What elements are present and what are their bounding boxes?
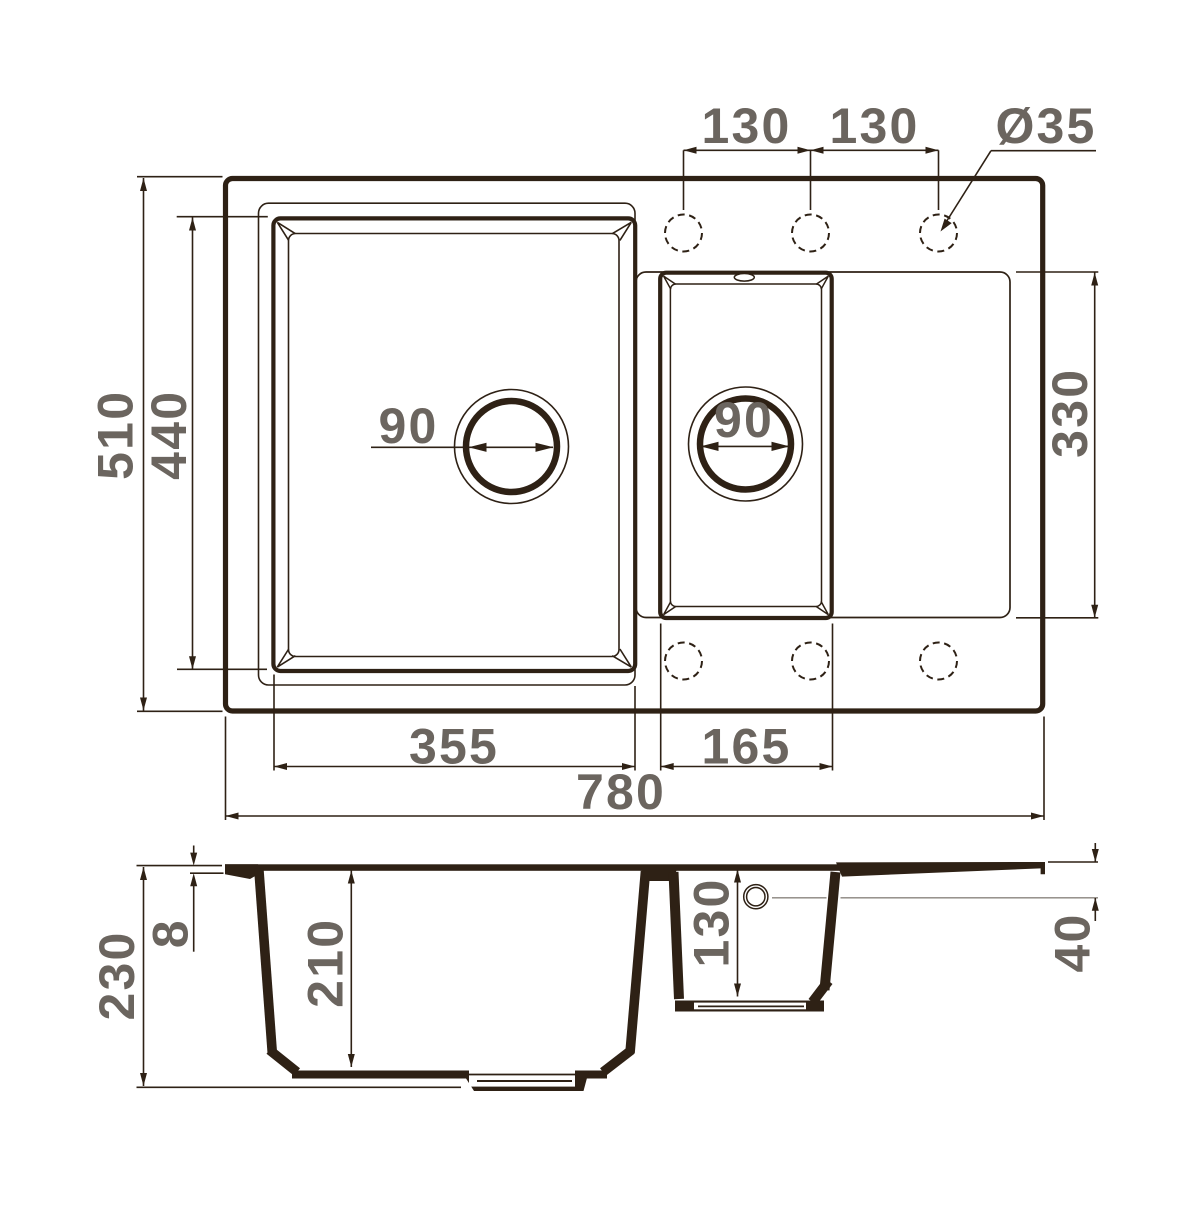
svg-text:130: 130	[684, 877, 740, 967]
svg-text:165: 165	[701, 719, 791, 775]
svg-text:8: 8	[142, 918, 198, 948]
svg-text:230: 230	[89, 930, 145, 1020]
svg-text:90: 90	[378, 398, 438, 454]
svg-text:130: 130	[701, 98, 791, 154]
svg-text:440: 440	[141, 390, 197, 480]
svg-text:330: 330	[1042, 368, 1098, 458]
svg-text:510: 510	[88, 390, 144, 480]
svg-text:90: 90	[714, 392, 774, 448]
svg-text:40: 40	[1045, 912, 1101, 972]
svg-text:780: 780	[576, 764, 666, 820]
svg-text:355: 355	[409, 719, 499, 775]
svg-text:210: 210	[297, 918, 353, 1008]
svg-text:Ø35: Ø35	[995, 98, 1096, 154]
svg-text:130: 130	[829, 98, 919, 154]
